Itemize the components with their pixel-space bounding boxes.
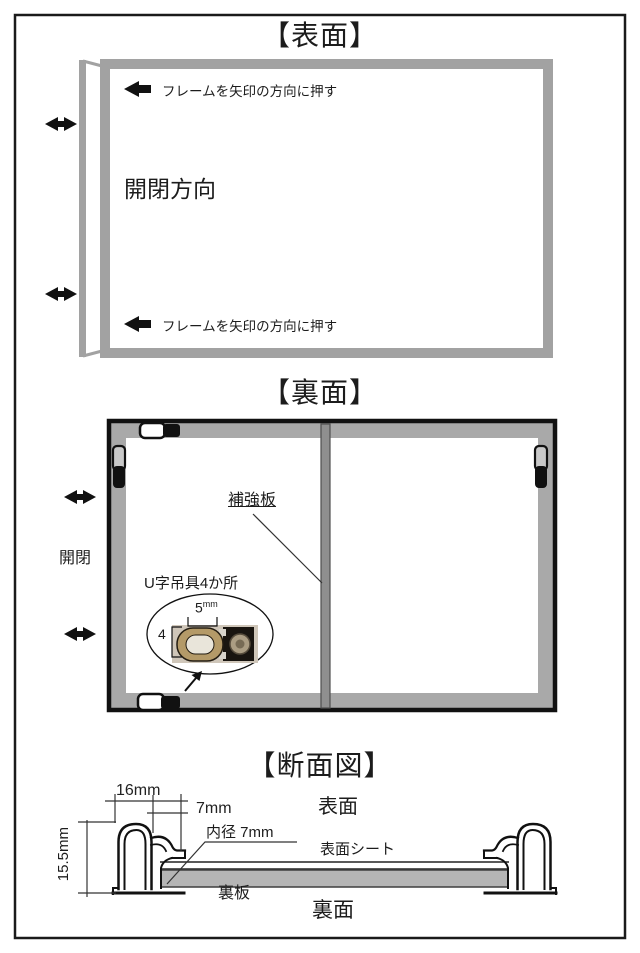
back-section-title: 【裏面】: [0, 377, 640, 409]
hanger-height-dim: 4: [158, 626, 166, 642]
open-close-direction-label: 開閉方向: [124, 176, 216, 202]
hanger-rivet-center: [236, 640, 245, 649]
reinforcement-label: 補強板: [228, 492, 276, 510]
push-instruction-top: フレームを矢印の方向に押す: [162, 84, 337, 100]
frame-left-rail: [79, 60, 86, 357]
hanger-width-dim: 5mm: [195, 599, 218, 616]
u-hanger-right: [535, 446, 547, 488]
front-frame: [105, 64, 548, 353]
front-side-label: 表面: [318, 796, 358, 819]
open-close-label: 開閉: [59, 550, 91, 568]
u-hanger-left: [113, 446, 125, 488]
open-close-double-arrow-icon: [45, 117, 77, 131]
back-side-label: 裏面: [312, 899, 354, 923]
u-hanger-bottom-left: [138, 694, 180, 710]
inner-diameter-label: 内径 7mm: [206, 824, 274, 841]
back-view-drawing: [64, 421, 555, 710]
hanger-width-unit: mm: [203, 599, 218, 609]
back-board: [157, 870, 515, 887]
open-close-double-arrow-icon: [64, 490, 96, 504]
outer-width-dim: 16mm: [116, 782, 160, 800]
u-hanger-top-left: [140, 423, 180, 438]
front-sheet: [157, 862, 515, 869]
push-instruction-bottom: フレームを矢印の方向に押す: [162, 319, 337, 335]
hanger-width-value: 5: [195, 600, 203, 616]
front-sheet-label: 表面シート: [320, 841, 395, 858]
cross-section-drawing: [78, 794, 556, 897]
front-section-title: 【表面】: [0, 20, 640, 52]
height-dim: 15.5mm: [55, 827, 72, 881]
cross-section-title: 【断面図】: [0, 750, 640, 782]
hanger-u-ring-hole: [186, 635, 214, 654]
open-close-double-arrow-icon: [45, 287, 77, 301]
back-board-label: 裏板: [218, 885, 250, 903]
instruction-diagram-page: 【表面】 フレームを矢印の方向に押す 開閉方向 フレームを矢印の方向に押す 【裏…: [0, 0, 640, 953]
inner-width-dim: 7mm: [196, 800, 232, 818]
front-view-drawing: [45, 60, 548, 357]
hanger-count-label: U字吊具4か所: [144, 575, 238, 592]
reinforcement-bar: [321, 424, 330, 708]
open-close-double-arrow-icon: [64, 627, 96, 641]
